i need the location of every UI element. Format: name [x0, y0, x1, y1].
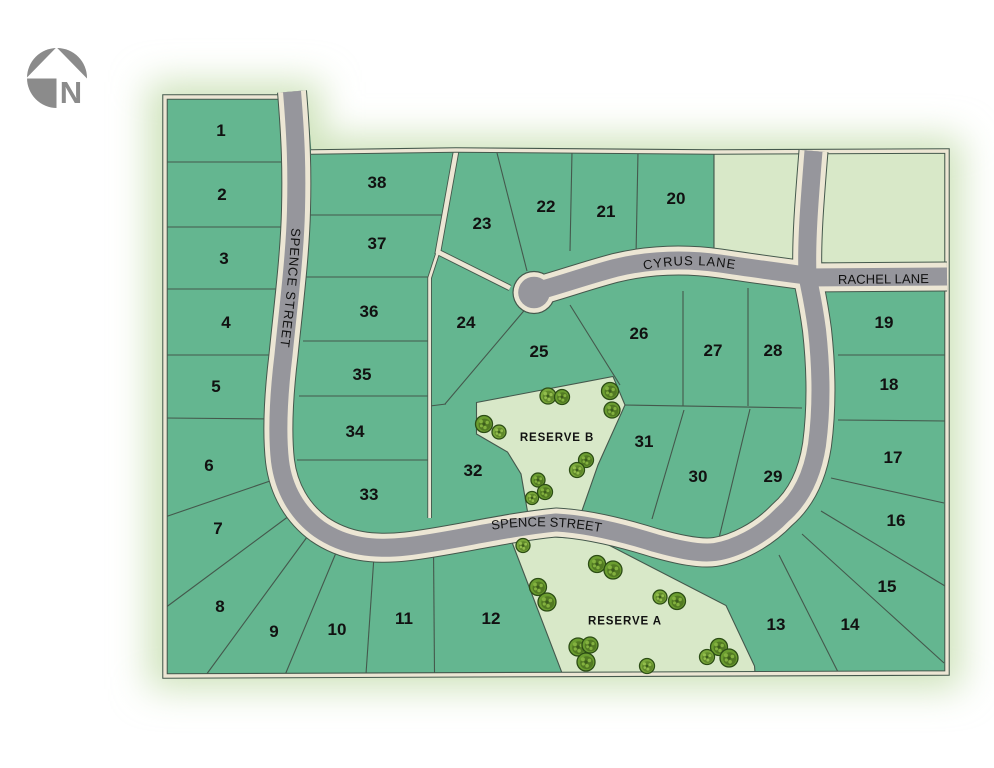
svg-text:19: 19 [875, 313, 894, 332]
svg-text:8: 8 [215, 597, 224, 616]
svg-text:2: 2 [217, 185, 226, 204]
svg-text:24: 24 [457, 313, 476, 332]
svg-text:38: 38 [368, 173, 387, 192]
svg-text:1: 1 [216, 121, 225, 140]
svg-text:34: 34 [346, 422, 365, 441]
svg-text:30: 30 [689, 467, 708, 486]
svg-text:37: 37 [368, 234, 387, 253]
svg-text:RESERVE B: RESERVE B [520, 432, 594, 444]
svg-text:21: 21 [597, 202, 616, 221]
svg-text:32: 32 [464, 461, 483, 480]
svg-text:5: 5 [211, 377, 220, 396]
svg-text:15: 15 [878, 577, 897, 596]
svg-text:16: 16 [887, 511, 906, 530]
svg-text:36: 36 [360, 302, 379, 321]
svg-text:RACHEL LANE: RACHEL LANE [838, 271, 929, 287]
svg-text:12: 12 [482, 609, 501, 628]
svg-text:29: 29 [764, 467, 783, 486]
svg-text:20: 20 [667, 189, 686, 208]
svg-text:10: 10 [328, 620, 347, 639]
svg-text:9: 9 [269, 622, 278, 641]
svg-text:23: 23 [473, 214, 492, 233]
svg-text:4: 4 [221, 313, 231, 332]
svg-text:13: 13 [767, 615, 786, 634]
svg-text:35: 35 [353, 365, 372, 384]
svg-text:33: 33 [360, 485, 379, 504]
svg-text:31: 31 [635, 432, 654, 451]
svg-text:N: N [60, 75, 82, 110]
svg-text:25: 25 [530, 342, 549, 361]
svg-text:26: 26 [630, 324, 649, 343]
svg-text:11: 11 [395, 609, 413, 628]
svg-text:17: 17 [884, 448, 903, 467]
svg-text:6: 6 [204, 456, 213, 475]
svg-text:3: 3 [219, 249, 228, 268]
svg-text:22: 22 [537, 197, 556, 216]
svg-text:28: 28 [764, 341, 783, 360]
svg-text:14: 14 [841, 615, 860, 634]
svg-text:7: 7 [213, 519, 222, 538]
svg-text:18: 18 [880, 375, 899, 394]
svg-text:27: 27 [704, 341, 723, 360]
svg-text:RESERVE A: RESERVE A [588, 616, 662, 628]
